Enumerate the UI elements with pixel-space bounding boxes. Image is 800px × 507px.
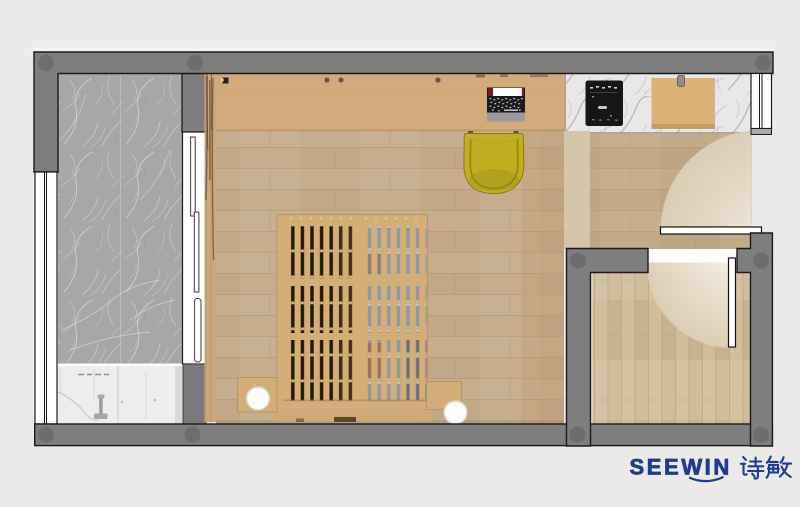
svg-text:SEEWIN: SEEWIN <box>630 455 732 480</box>
